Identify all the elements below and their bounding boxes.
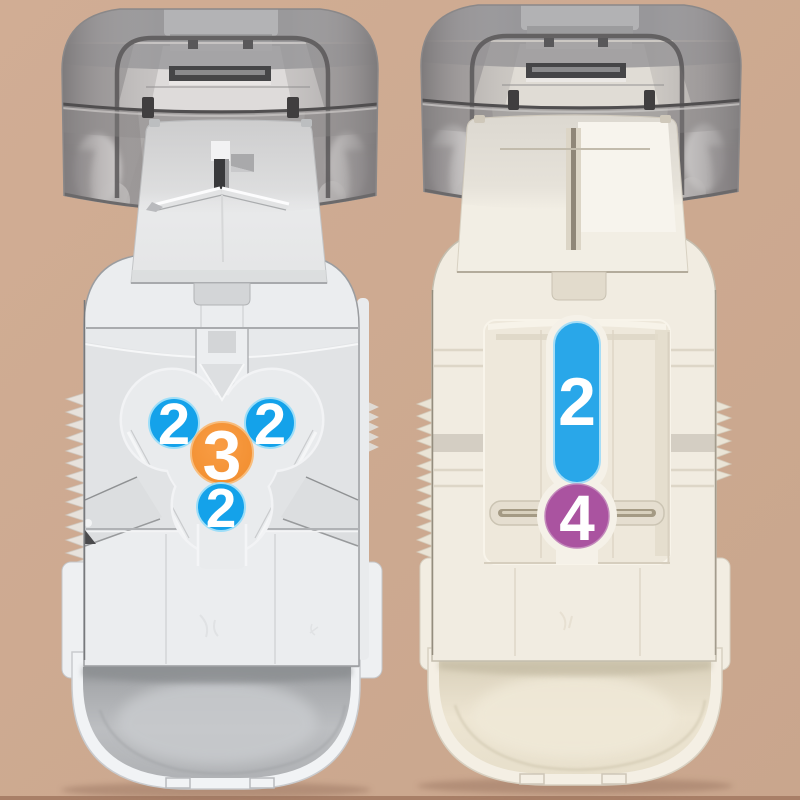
svg-text:2: 2 — [254, 392, 286, 457]
svg-text:4: 4 — [559, 482, 595, 554]
svg-text:2: 2 — [558, 364, 596, 440]
svg-text:2: 2 — [206, 477, 237, 539]
svg-text:2: 2 — [158, 392, 190, 457]
